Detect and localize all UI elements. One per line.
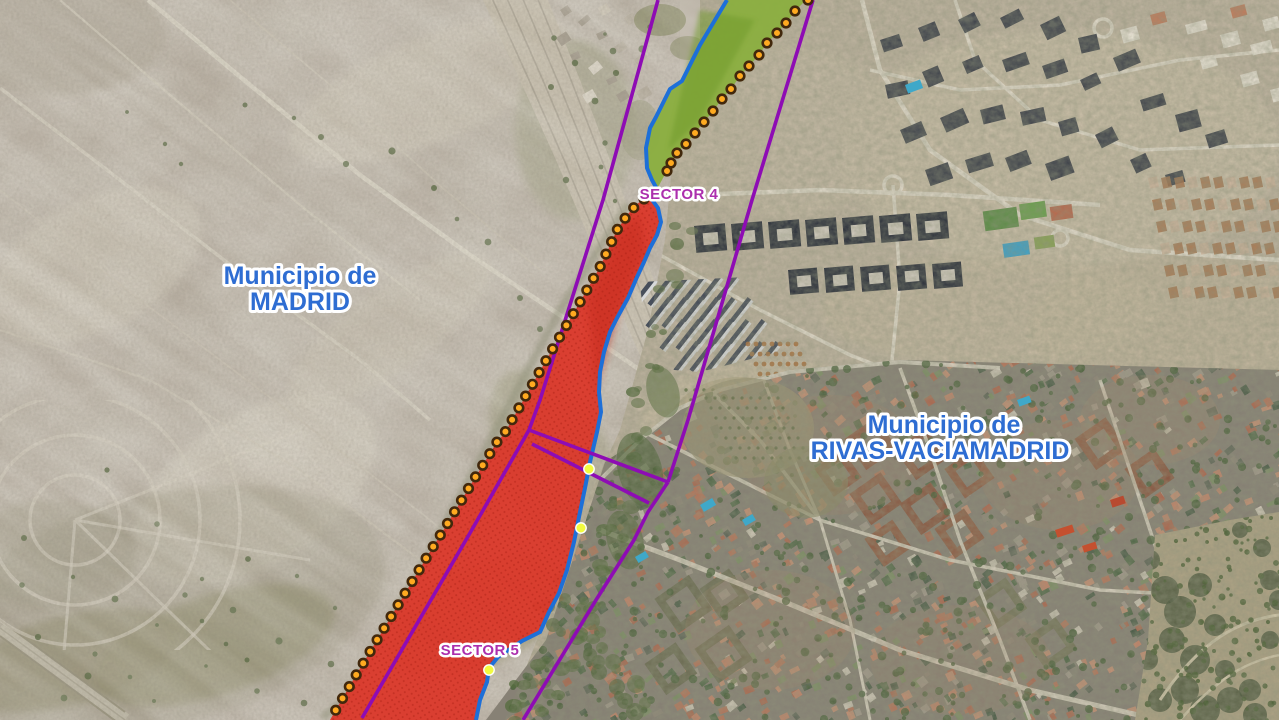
svg-text:RIVAS-VACIAMADRID: RIVAS-VACIAMADRID xyxy=(811,437,1070,465)
svg-text:Municipio de: Municipio de xyxy=(868,411,1021,439)
svg-text:Municipio de: Municipio de xyxy=(224,262,377,290)
svg-text:SECTOR 5: SECTOR 5 xyxy=(441,642,520,659)
svg-text:SECTOR 4: SECTOR 4 xyxy=(640,186,719,203)
svg-text:MADRID: MADRID xyxy=(250,288,350,316)
